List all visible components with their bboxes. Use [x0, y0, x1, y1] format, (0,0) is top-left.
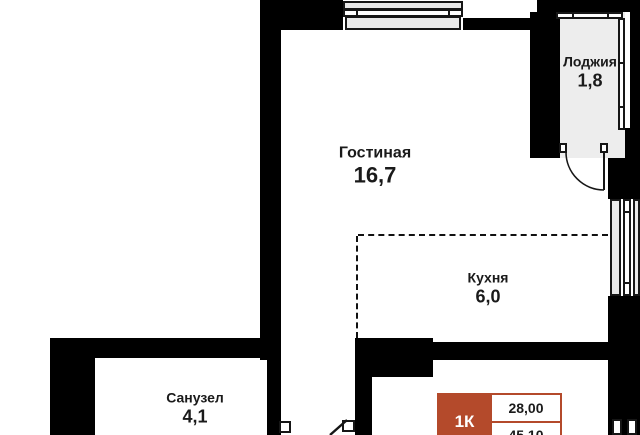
room-label-bathroom: Санузел 4,1 — [166, 391, 224, 426]
room-name-loggia: Лоджия — [563, 55, 617, 69]
kitchen-zone-dashed-horizontal — [358, 234, 608, 236]
room-name-kitchen: Кухня — [468, 271, 509, 285]
room-name-bathroom: Санузел — [166, 391, 224, 405]
window-living-inner-sill — [345, 16, 461, 30]
room-area-kitchen: 6,0 — [475, 288, 500, 306]
wall-bathroom-left — [50, 358, 95, 435]
wall-bathroom-top — [50, 338, 281, 358]
room-label-kitchen: Кухня 6,0 — [468, 271, 509, 306]
room-area-living: 16,7 — [354, 165, 397, 187]
room-label-loggia: Лоджия 1,8 — [563, 55, 617, 90]
window-kitchen-outer-band — [633, 199, 640, 296]
room-area-bathroom: 4,1 — [182, 408, 207, 426]
window-loggia-right-frame — [618, 18, 625, 130]
apartment-living-area: 28,00 — [492, 395, 560, 423]
window-loggia-top-frame — [556, 12, 623, 19]
room-area-loggia: 1,8 — [577, 72, 602, 90]
entry-door-jamb-right — [342, 420, 355, 432]
loggia-door-jamb-left — [559, 143, 567, 153]
window-kitchen-frame — [623, 199, 631, 296]
floor-plan: Гостиная 16,7 Лоджия 1,8 Кухня 6,0 Сануз… — [0, 0, 640, 435]
wall-top-right-of-window — [463, 18, 537, 30]
wall-kitchen-divider-thick — [355, 338, 433, 377]
apartment-badge[interactable]: 1К 28,00 45,10 — [437, 393, 562, 435]
window-kitchen-inner-sill — [610, 199, 621, 296]
entry-door-jamb-left — [279, 421, 291, 433]
room-name-living: Гостиная — [339, 146, 411, 162]
window-bottom-right-box-2 — [627, 419, 637, 435]
wall-kitchen-divider-thin — [433, 342, 610, 360]
wall-loggia-left — [530, 12, 560, 158]
window-bottom-right-box-1 — [612, 419, 622, 435]
wall-right-column-top — [630, 0, 640, 130]
apartment-total-area: 45,10 — [492, 423, 560, 435]
kitchen-zone-dashed-vertical — [356, 236, 358, 338]
wall-corridor-right — [355, 377, 372, 435]
wall-right-lower — [608, 296, 640, 435]
wall-left — [260, 0, 281, 360]
loggia-door-jamb-right — [600, 143, 608, 153]
room-label-living: Гостиная 16,7 — [339, 146, 411, 187]
apartment-type-label: 1К — [439, 395, 490, 435]
wall-loggia-top-band — [537, 0, 640, 12]
